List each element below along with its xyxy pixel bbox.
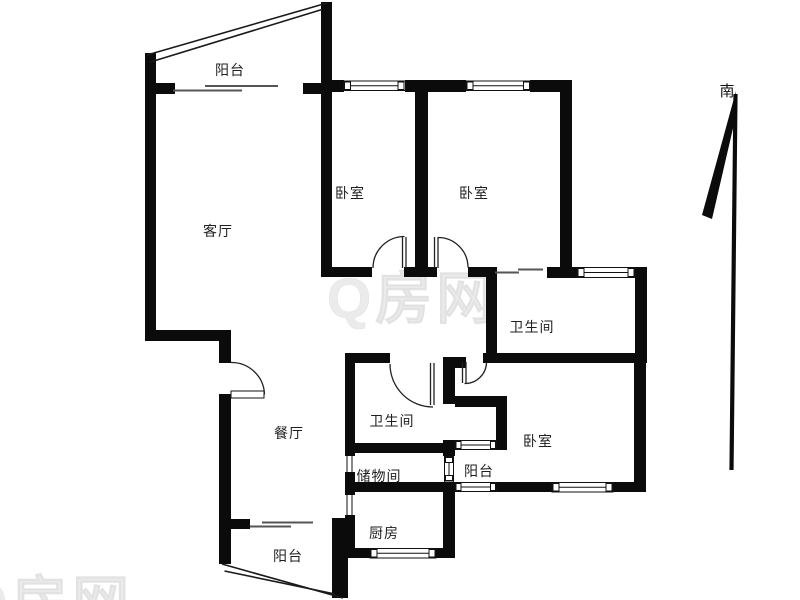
wall-bedrooms-bottom-b [404,267,437,277]
wall-service-left-a [345,353,355,456]
door-bathroom-lower [390,363,434,407]
wall-living-right [321,2,332,277]
window-balcony-small-bottom [455,483,497,492]
floorplan-drawing: Q房网 Q房网 [0,0,800,600]
wall-bedroom2-right [560,80,572,278]
wall-storage-top [345,443,455,453]
wall-kitchen-bottom-b [436,548,455,558]
window-kitchen-bottom [370,549,436,559]
wall-L-vertical [496,396,507,450]
door-bedroom-right [463,362,487,384]
window-balcony-small-left [445,457,454,483]
door-entry [231,362,265,398]
wall-bath-upper-left [486,267,497,363]
wall-entry-upper [219,330,231,363]
room-label-bedroom-right: 卧室 [523,433,553,449]
wall-top-b [405,80,466,92]
room-label-bathroom-lower: 卫生间 [370,413,415,429]
opening-storage-left [347,456,352,472]
wall-balcony-top-stub-left [145,83,175,94]
balcony-top-slant-outer [147,3,327,55]
door-bedroom2 [435,237,469,268]
wall-between-bedrooms [415,85,428,268]
wall-bedrooms-bottom-a [321,267,372,277]
wall-divider-bottom [443,482,455,558]
room-label-balcony-small: 阳台 [464,463,494,479]
compass-arrow-shaft [732,94,736,470]
wall-entry-lower [219,394,231,564]
wall-divider-top [443,440,455,456]
wall-mid-main [483,353,646,363]
wall-balcony-bottom-right [332,518,348,598]
opening-kitchen-left [347,495,352,515]
balcony-top-slant-inner [151,10,323,63]
room-label-storage-room: 储物间 [357,468,402,484]
window-bedroom-right-bottom [552,483,613,493]
wall-balcony-top-stub-right [303,83,321,94]
balcony-bottom-slant-inner [225,571,336,594]
door-bedroom1 [373,237,406,269]
room-label-living-room: 客厅 [203,223,233,239]
wall-bottom-band-b [497,482,552,492]
room-label-balcony-top: 阳台 [215,62,245,78]
window-bedroom2-top [466,81,531,91]
compass-arrow-head [702,91,736,219]
room-label-kitchen: 厨房 [369,525,399,541]
room-label-bedroom-top-left: 卧室 [335,185,365,201]
window-bedroom1-top [344,81,406,91]
wall-bedroom-right-right [634,353,646,492]
window-balcony-small-top [455,441,497,450]
floorplan-canvas: Q房网 Q房网 [0,0,800,600]
wall-step [145,330,231,341]
room-label-dining-room: 餐厅 [274,425,304,441]
wall-service-left-b [345,472,355,495]
window-bath-upper [577,268,635,278]
balcony-bottom-slant-outer [222,564,343,598]
wall-top-a [332,80,344,92]
watermark-partial-bottom-left: Q房网 [0,571,133,600]
wall-bath-upper-right [635,267,647,363]
wall-balcony-bottom-stub [231,519,250,529]
wall-kitchen-bottom-a [345,548,370,558]
room-label-balcony-bottom: 阳台 [273,548,303,564]
room-label-bedroom-top-right: 卧室 [459,185,489,201]
room-label-bathroom-upper: 卫生间 [510,319,555,335]
compass: 南 [702,83,736,470]
wall-left [145,53,156,340]
wall-bath-upper-top [547,267,577,278]
compass-south-label: 南 [719,83,734,100]
